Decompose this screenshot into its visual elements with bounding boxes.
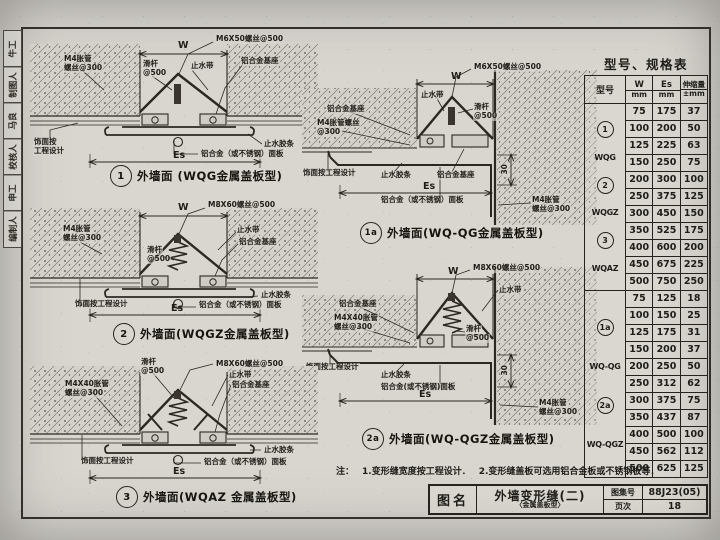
- type-number: 1a: [597, 319, 614, 336]
- type-name: WQGZ: [592, 208, 619, 217]
- label-seal-strip: 止水胶条: [263, 446, 295, 455]
- margin-text: 牛工: [7, 40, 19, 57]
- spec-group-1: 1 WQG 2 WQGZ 3 WQAZ 75175371002005012522…: [585, 104, 707, 290]
- dim-es: Es: [172, 467, 186, 478]
- label-m4-screw: 螺丝@300: [64, 389, 104, 398]
- spec-cell: 250: [626, 189, 653, 205]
- spec-cell: 31: [681, 325, 707, 341]
- label-finish: 饰面按工程设计: [74, 300, 129, 309]
- spec-group-2: 1a WQ-QG 2a WQ-QGZ 751251810015025125175…: [585, 290, 707, 477]
- spec-cell: 100: [626, 121, 653, 137]
- spec-cell: 500: [653, 427, 680, 443]
- caption-detail-1a: 1a 外墙面(WQ-QG金属盖板型): [360, 222, 544, 244]
- label-screw: M8X60螺丝@500: [215, 360, 284, 369]
- spec-row: 200300100: [626, 171, 707, 188]
- spec-cell: 125: [681, 189, 707, 205]
- dim-es: Es: [172, 151, 186, 162]
- spec-row: 20025050: [626, 358, 707, 375]
- cover-plate: [105, 289, 254, 297]
- spec-cell: 400: [626, 427, 653, 443]
- detail-2-wqgz: M4胀管 螺丝@300 W M8X60螺丝@500 止水带 铝合金基座 滑杆 @…: [22, 198, 322, 348]
- detail-3-wqaz: 滑杆 @500 M8X60螺丝@500 止水带 铝合金基座 M4X40胀管 螺丝…: [22, 358, 322, 510]
- page-number-row: 页次 18: [604, 500, 706, 513]
- spec-row: 300450150: [626, 205, 707, 222]
- type-number: 2a: [597, 397, 614, 414]
- header-es-label: Es: [661, 81, 672, 90]
- title-block-right: 图集号 88J23(05) 页次 18: [604, 486, 706, 513]
- dim-es: Es: [170, 304, 184, 315]
- spec-row: 10020050: [626, 120, 707, 137]
- header-ext-label: 伸缩量: [683, 81, 706, 89]
- caption-number: 1: [110, 165, 132, 187]
- spec-cell: 75: [681, 155, 707, 171]
- label-seal-strip: 止水胶条: [380, 171, 412, 180]
- slide-rod: [174, 391, 181, 399]
- spec-row: 400600200: [626, 239, 707, 256]
- spec-cell: 450: [626, 444, 653, 460]
- label-face-plate: 铝合金（或不锈钢）面板: [380, 196, 465, 205]
- caption-text: 外墙面(WQGZ金属盖板型): [140, 326, 290, 342]
- label-waterstop: 止水带: [190, 62, 215, 71]
- spec-cell: 562: [653, 444, 680, 460]
- title-block: 图名 外墙变形缝(二) 〈金属盖板型〉 图集号 88J23(05) 页次 18: [428, 484, 708, 515]
- label-alu-base: 铝合金基座: [436, 171, 476, 180]
- label-m4-screw: 螺丝@300: [538, 408, 578, 417]
- note-item-1: 1.变形缝宽度按工程设计．: [362, 464, 471, 477]
- spec-cell: 112: [681, 444, 707, 460]
- spec-cell: 200: [626, 359, 653, 375]
- spec-cell: 250: [681, 274, 707, 290]
- caption-number: 1a: [360, 222, 382, 244]
- spec-row: 15020037: [626, 341, 707, 358]
- margin-text: 编制人: [7, 216, 19, 242]
- label-face-plate: 铝合金（或不锈钢）面板: [203, 458, 288, 467]
- spec-cell: 63: [681, 138, 707, 154]
- spring: [169, 242, 187, 270]
- spec-row: 12517531: [626, 324, 707, 341]
- label-alu-base: 铝合金基座: [326, 105, 366, 114]
- spec-cell: 312: [653, 376, 680, 392]
- spec-row: 7512518: [626, 291, 707, 307]
- slide-rod: [448, 107, 455, 125]
- spec-cell: 175: [653, 104, 680, 120]
- spec-cell: 25: [681, 308, 707, 324]
- label-screw: M6X50螺丝@500: [473, 63, 542, 72]
- margin-cell-signature: 马良: [3, 102, 22, 140]
- label-face-plate: 铝合金（或不锈钢）面板: [198, 301, 283, 310]
- header-es: Es mm: [653, 76, 680, 103]
- label-m4-screw: 螺丝@300: [62, 234, 102, 243]
- spec-cell: 125: [626, 138, 653, 154]
- spec-cell: 125: [653, 291, 680, 307]
- waterstop-band: [140, 74, 227, 112]
- spec-cell: 375: [653, 393, 680, 409]
- dim-es: Es: [422, 182, 436, 193]
- label-seal-strip: 止水胶条: [380, 371, 412, 380]
- dim-w: W: [447, 267, 459, 278]
- header-w: W mm: [626, 76, 653, 103]
- margin-cell-signature: 申工: [3, 174, 22, 212]
- slide-rod: [448, 293, 455, 301]
- type-name: WQAZ: [592, 264, 618, 273]
- label-slide-rod: @500: [140, 367, 165, 376]
- margin-cell-signature: 牛工: [3, 30, 22, 68]
- spec-cell: 75: [681, 393, 707, 409]
- spec-cell: 200: [681, 240, 707, 256]
- sheet-notes: 注： 1.变形缝宽度按工程设计． 2.变形缝盖板可选用铝合金板或不锈钢板等．: [336, 464, 659, 477]
- atlas-number-row: 图集号 88J23(05): [604, 486, 706, 500]
- caption-detail-1: 1 外墙面 (WQG金属盖板型): [110, 165, 282, 187]
- spring: [169, 398, 187, 426]
- spec-cell: 150: [626, 342, 653, 358]
- label-screw: M8X60螺丝@500: [472, 264, 541, 273]
- label-screw: M6X50螺丝@500: [215, 35, 284, 44]
- spec-row: 400500100: [626, 426, 707, 443]
- spec-cell: 75: [626, 104, 653, 120]
- detail-2a-wq-qgz: M8X60螺丝@500 W 止水带 铝合金基座 M4X40胀管 螺丝@300 滑…: [302, 247, 602, 452]
- label-waterstop: 止水带: [498, 286, 523, 295]
- caption-number: 3: [116, 486, 138, 508]
- label-alu-base: 铝合金基座: [238, 238, 278, 247]
- dim-30: 30: [501, 163, 510, 175]
- spec-cell: 37: [681, 342, 707, 358]
- atlas-number-label: 图集号: [604, 486, 643, 499]
- spec-cell: 225: [653, 138, 680, 154]
- spec-cell: 500: [626, 274, 653, 290]
- page-number-label: 页次: [604, 500, 643, 513]
- header-w-label: W: [634, 81, 643, 90]
- spec-cell: 200: [653, 342, 680, 358]
- caption-detail-3: 3 外墙面(WQAZ 金属盖板型): [116, 486, 297, 508]
- spec-cell: 450: [653, 206, 680, 222]
- label-slide-rod: @500: [142, 69, 167, 78]
- spec-cell: 150: [626, 155, 653, 171]
- spec-cell: 525: [653, 223, 680, 239]
- slide-rod: [174, 84, 181, 104]
- sheet-title-cell: 外墙变形缝(二) 〈金属盖板型〉: [477, 486, 604, 513]
- spec-cell: 150: [653, 308, 680, 324]
- caption-text: 外墙面(WQ-QGZ金属盖板型): [389, 431, 555, 447]
- spec-cell: 350: [626, 410, 653, 426]
- label-screw: M8X60螺丝@500: [207, 201, 276, 210]
- spec-row: 500750250: [626, 273, 707, 290]
- dim-w: W: [177, 41, 189, 52]
- spec-cell: 200: [626, 172, 653, 188]
- spec-cell: 100: [626, 308, 653, 324]
- label-slide-rod: @500: [473, 112, 498, 121]
- type-number: 3: [597, 232, 614, 249]
- label-waterstop: 止水带: [420, 91, 445, 100]
- spec-row: 450562112: [626, 443, 707, 460]
- caption-detail-2a: 2a 外墙面(WQ-QGZ金属盖板型): [362, 428, 555, 450]
- margin-text: 马良: [7, 112, 19, 129]
- header-es-unit: mm: [653, 90, 679, 99]
- spec-cell: 75: [626, 291, 653, 307]
- spec-cell: 225: [681, 257, 707, 273]
- caption-text: 外墙面 (WQG金属盖板型): [137, 168, 282, 184]
- label-finish: 饰面按工程设计: [80, 457, 135, 466]
- detail-1a-geometry: [302, 55, 602, 247]
- spec-cell: 250: [653, 359, 680, 375]
- caption-number: 2a: [362, 428, 384, 450]
- caption-number: 2: [113, 323, 135, 345]
- spec-cell: 175: [681, 223, 707, 239]
- spec-cell: 175: [653, 325, 680, 341]
- spec-group-1-types: 1 WQG 2 WQGZ 3 WQAZ: [585, 104, 626, 290]
- spec-cell: 350: [626, 223, 653, 239]
- spec-group-2-types: 1a WQ-QG 2a WQ-QGZ: [585, 291, 626, 477]
- spec-row: 25031262: [626, 375, 707, 392]
- margin-text: 制图人: [7, 72, 19, 98]
- type-number: 1: [597, 121, 614, 138]
- spec-row: 7517537: [626, 104, 707, 120]
- dim-es: Es: [418, 390, 432, 401]
- spec-cell: 750: [653, 274, 680, 290]
- spec-cell: 450: [626, 257, 653, 273]
- caption-detail-2: 2 外墙面(WQGZ金属盖板型): [113, 323, 290, 345]
- spec-cell: 50: [681, 121, 707, 137]
- spec-row: 350525175: [626, 222, 707, 239]
- type-number: 2: [597, 177, 614, 194]
- header-extension: 伸缩量 ±mm: [681, 76, 707, 103]
- label-m4-screw: 螺丝@300: [531, 205, 571, 214]
- spec-cell: 150: [681, 206, 707, 222]
- spec-row: 450675225: [626, 256, 707, 273]
- cover-plate: [105, 127, 254, 135]
- margin-cell-draftsman: 制图人: [3, 66, 22, 104]
- label-waterstop: 止水带: [236, 226, 261, 235]
- margin-cell-compiler: 编制人: [3, 210, 22, 248]
- header-w-unit: mm: [626, 90, 652, 99]
- dim-w: W: [450, 72, 462, 83]
- spec-cell: 200: [653, 121, 680, 137]
- label-slide-rod: @500: [465, 334, 490, 343]
- label-slide-rod: @500: [146, 255, 171, 264]
- note-item-2: 2.变形缝盖板可选用铝合金板或不锈钢板等．: [479, 464, 660, 477]
- spec-group-2-rows: 7512518100150251251753115020037200250502…: [626, 291, 707, 477]
- spec-table-title: 型号、规格表: [584, 54, 708, 73]
- spec-cell: 300: [626, 393, 653, 409]
- spec-row: 10015025: [626, 307, 707, 324]
- margin-cell-checker: 校核人: [3, 138, 22, 176]
- spec-cell: 100: [681, 172, 707, 188]
- spec-cell: 437: [653, 410, 680, 426]
- header-model: 型号: [585, 76, 626, 103]
- spec-table-header: 型号 W mm Es mm 伸缩量 ±mm: [585, 76, 707, 104]
- detail-1-wqg: M4胀管 螺丝@300 滑杆 @500 W M6X50螺丝@500 止水带 铝合…: [22, 30, 322, 188]
- label-alu-base: 铝合金基座: [231, 381, 271, 390]
- spec-cell: 125: [681, 461, 707, 477]
- spec-row: 15025075: [626, 154, 707, 171]
- label-waterstop: 止水带: [228, 371, 253, 380]
- note-prefix: 注：: [336, 464, 354, 477]
- label-m4-screw: 螺丝@300: [333, 323, 373, 332]
- margin-text: 申工: [7, 184, 19, 201]
- label-m4-screw: 螺丝@300: [63, 64, 103, 73]
- spec-cell: 675: [653, 257, 680, 273]
- margin-text: 校核人: [7, 144, 19, 170]
- caption-text: 外墙面(WQAZ 金属盖板型): [143, 489, 297, 505]
- title-block-name-label: 图名: [430, 486, 477, 513]
- cover-plate: [328, 151, 491, 217]
- spec-cell: 300: [653, 172, 680, 188]
- spec-group-1-rows: 7517537100200501252256315025075200300100…: [626, 104, 707, 290]
- spec-row: 35043787: [626, 409, 707, 426]
- detail-1a-wq-qg: M6X50螺丝@500 W 止水带 滑杆 @500 铝合金基座 M4胀管螺丝 @…: [302, 55, 602, 247]
- dim-w: W: [177, 203, 189, 214]
- spec-cell: 50: [681, 359, 707, 375]
- label-m4-screw: @300: [316, 128, 341, 137]
- spec-row: 30037575: [626, 392, 707, 409]
- spec-cell: 18: [681, 291, 707, 307]
- spec-cell: 250: [653, 155, 680, 171]
- spec-row: 12522563: [626, 137, 707, 154]
- page-number-value: 18: [643, 500, 706, 513]
- label-finish: 饰面按工程设计: [302, 169, 357, 178]
- spec-table-box: 型号 W mm Es mm 伸缩量 ±mm 1 WQG 2: [584, 75, 708, 478]
- type-name: WQ-QGZ: [587, 440, 623, 449]
- sheet-subtitle: 〈金属盖板型〉: [516, 502, 565, 509]
- spring: [443, 301, 461, 333]
- spec-cell: 250: [626, 376, 653, 392]
- type-name: WQG: [594, 153, 615, 162]
- dim-30: 30: [501, 364, 510, 376]
- header-ext-unit: ±mm: [681, 89, 707, 98]
- spec-cell: 300: [626, 206, 653, 222]
- spec-cell: 37: [681, 104, 707, 120]
- caption-text: 外墙面(WQ-QG金属盖板型): [387, 225, 544, 241]
- spec-cell: 375: [653, 189, 680, 205]
- label-finish: 工程设计: [33, 147, 65, 156]
- atlas-number-value: 88J23(05): [643, 486, 706, 499]
- spec-cell: 600: [653, 240, 680, 256]
- spec-table: 型号、规格表 型号 W mm Es mm 伸缩量 ±mm 1: [584, 54, 708, 478]
- label-seal-strip: 止水胶条: [260, 291, 292, 300]
- label-face-plate: 铝合金（或不锈钢）面板: [200, 150, 285, 159]
- spec-cell: 87: [681, 410, 707, 426]
- spec-cell: 125: [626, 325, 653, 341]
- spec-cell: 400: [626, 240, 653, 256]
- label-seal-strip: 止水胶条: [263, 140, 295, 149]
- spec-cell: 100: [681, 427, 707, 443]
- spec-cell: 62: [681, 376, 707, 392]
- spec-row: 250375125: [626, 188, 707, 205]
- atlas-sheet: 牛工 制图人 马良 校核人 申工 编制人 M4胀: [0, 0, 720, 540]
- cover-plate: [105, 445, 254, 453]
- label-alu-base: 铝合金基座: [240, 57, 280, 66]
- slide-rod: [174, 235, 181, 243]
- label-alu-base: 铝合金基座: [338, 300, 378, 309]
- type-name: WQ-QG: [590, 362, 621, 371]
